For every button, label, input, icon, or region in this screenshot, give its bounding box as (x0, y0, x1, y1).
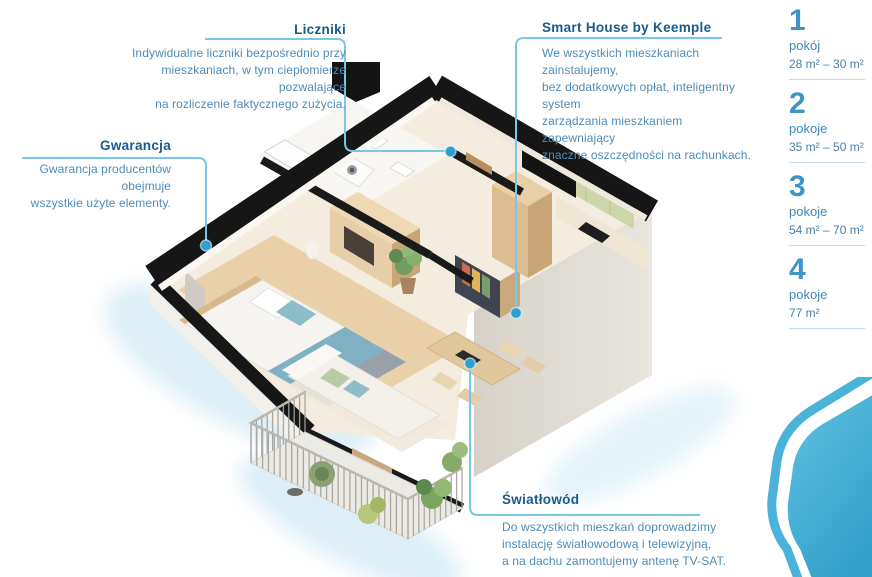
annotation-text-line: bez dodatkowych opłat, inteligentny syst… (542, 79, 757, 113)
callout-dot-smart-house (511, 308, 522, 319)
callout-dot-gwarancja (201, 240, 212, 251)
annotation-text-line: instalację światłowodową i telewizyjną, (502, 536, 742, 553)
room-area: 35 m² – 50 m² (789, 140, 867, 154)
room-types-sidebar: 1 pokój 28 m² – 30 m² 2 pokoje 35 m² – 5… (789, 6, 867, 338)
divider (789, 328, 865, 329)
room-count: 4 (789, 255, 867, 285)
annotation-text-line: zarządzania mieszkaniem zapewniający (542, 113, 757, 147)
room-label: pokój (789, 38, 867, 53)
annotation-text-line: We wszystkich mieszkaniach zainstalujemy… (542, 45, 757, 79)
room-area: 28 m² – 30 m² (789, 57, 867, 71)
annotation-gwarancja: Gwarancja Gwarancja producentów obejmuje… (11, 138, 171, 212)
annotation-text-line: znaczne oszczędności na rachunkach. (542, 147, 757, 164)
divider (789, 162, 865, 163)
annotation-title: Smart House by Keemple (542, 20, 757, 35)
annotation-title: Gwarancja (11, 138, 171, 153)
room-type-row: 3 pokoje 54 m² – 70 m² (789, 172, 867, 246)
annotation-liczniki: Liczniki Indywidualne liczniki bezpośred… (114, 22, 346, 113)
annotation-title: Światłowód (502, 492, 742, 507)
callout-dot-swiatlowod (465, 358, 476, 369)
room-type-row: 4 pokoje 77 m² (789, 255, 867, 329)
room-count: 3 (789, 172, 867, 202)
annotation-text-line: mieszkaniach, w tym ciepłomierze pozwala… (114, 62, 346, 96)
room-count: 2 (789, 89, 867, 119)
room-label: pokoje (789, 204, 867, 219)
divider (789, 245, 865, 246)
room-label: pokoje (789, 287, 867, 302)
room-area: 77 m² (789, 306, 867, 320)
annotation-text-line: Do wszystkich mieszkań doprowadzimy (502, 519, 742, 536)
room-type-row: 2 pokoje 35 m² – 50 m² (789, 89, 867, 163)
room-area: 54 m² – 70 m² (789, 223, 867, 237)
room-type-row: 1 pokój 28 m² – 30 m² (789, 6, 867, 80)
callout-dot-liczniki (445, 146, 456, 157)
annotation-text-line: na rozliczenie faktycznego zużycia. (114, 96, 346, 113)
annotation-text-line: wszystkie użyte elementy. (11, 195, 171, 212)
infographic-canvas: Liczniki Indywidualne liczniki bezpośred… (0, 0, 872, 577)
annotation-swiatlowod: Światłowód Do wszystkich mieszkań doprow… (502, 492, 742, 570)
room-label: pokoje (789, 121, 867, 136)
annotation-text-line: Indywidualne liczniki bezpośrednio przy (114, 45, 346, 62)
annotation-title: Liczniki (114, 22, 346, 37)
annotation-text-line: Gwarancja producentów obejmuje (11, 161, 171, 195)
divider (789, 79, 865, 80)
room-count: 1 (789, 6, 867, 36)
annotation-text-line: a na dachu zamontujemy antenę TV-SAT. (502, 553, 742, 570)
annotation-smart-house: Smart House by Keemple We wszystkich mie… (542, 20, 757, 164)
